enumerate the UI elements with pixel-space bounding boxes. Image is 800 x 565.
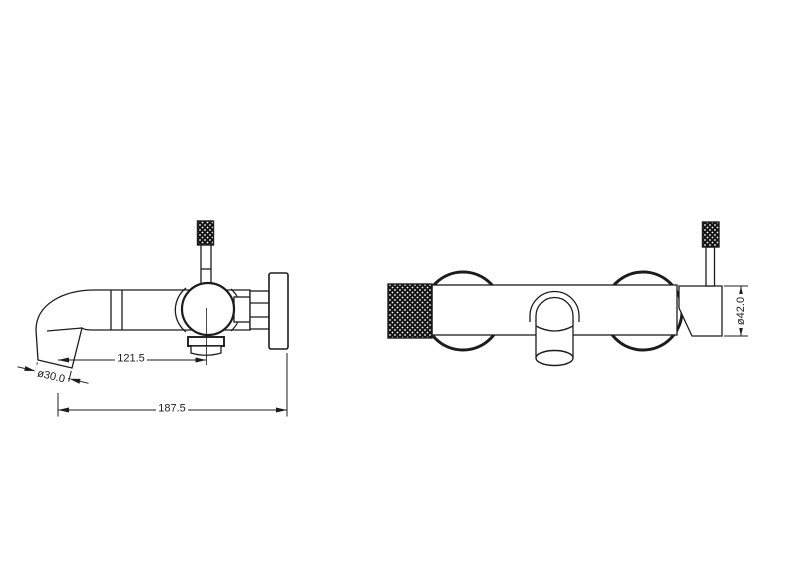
side-view: 121.5 ø30.0 187.5 <box>18 221 289 417</box>
wall-connector-nut <box>250 291 269 329</box>
arrowhead-right <box>196 358 207 363</box>
dimension-label-outlet-diameter: ø30.0 <box>36 368 66 386</box>
body-end-cap <box>679 286 722 336</box>
handle-knurl-top-view <box>703 222 720 247</box>
wall-flange-plate <box>269 273 288 349</box>
valve-neck <box>234 297 250 322</box>
arrowhead-right <box>276 408 287 413</box>
aerator-body <box>191 346 221 355</box>
technical-drawing-canvas: 121.5 ø30.0 187.5 <box>0 0 800 565</box>
body-knurled-end <box>388 284 432 338</box>
dimension-label-outlet-to-valve: 121.5 <box>117 353 145 365</box>
drawing-sheet: 121.5 ø30.0 187.5 <box>0 0 800 565</box>
handle-stem <box>201 244 211 286</box>
dimension-outlet-diameter: ø30.0 <box>18 363 89 387</box>
spout-outlet-ellipse <box>536 351 573 366</box>
handle-stem-top-view <box>706 247 715 286</box>
dimension-label-body-diameter: ø42.0 <box>735 297 747 325</box>
dimension-overall-length: 187.5 <box>58 353 287 417</box>
top-view: ø42.0 <box>388 222 748 366</box>
arrowhead-outlet-right <box>69 379 80 384</box>
aerator-collar <box>188 337 224 346</box>
dimension-body-diameter: ø42.0 <box>724 286 748 336</box>
dimension-outlet-to-valve: 121.5 <box>58 353 207 365</box>
arrowhead-left <box>58 408 69 413</box>
handle-knurl <box>198 221 214 245</box>
valve-body-circle <box>182 283 234 335</box>
arrowhead-outlet-left <box>24 366 35 371</box>
dimension-label-overall-length: 187.5 <box>158 403 186 415</box>
